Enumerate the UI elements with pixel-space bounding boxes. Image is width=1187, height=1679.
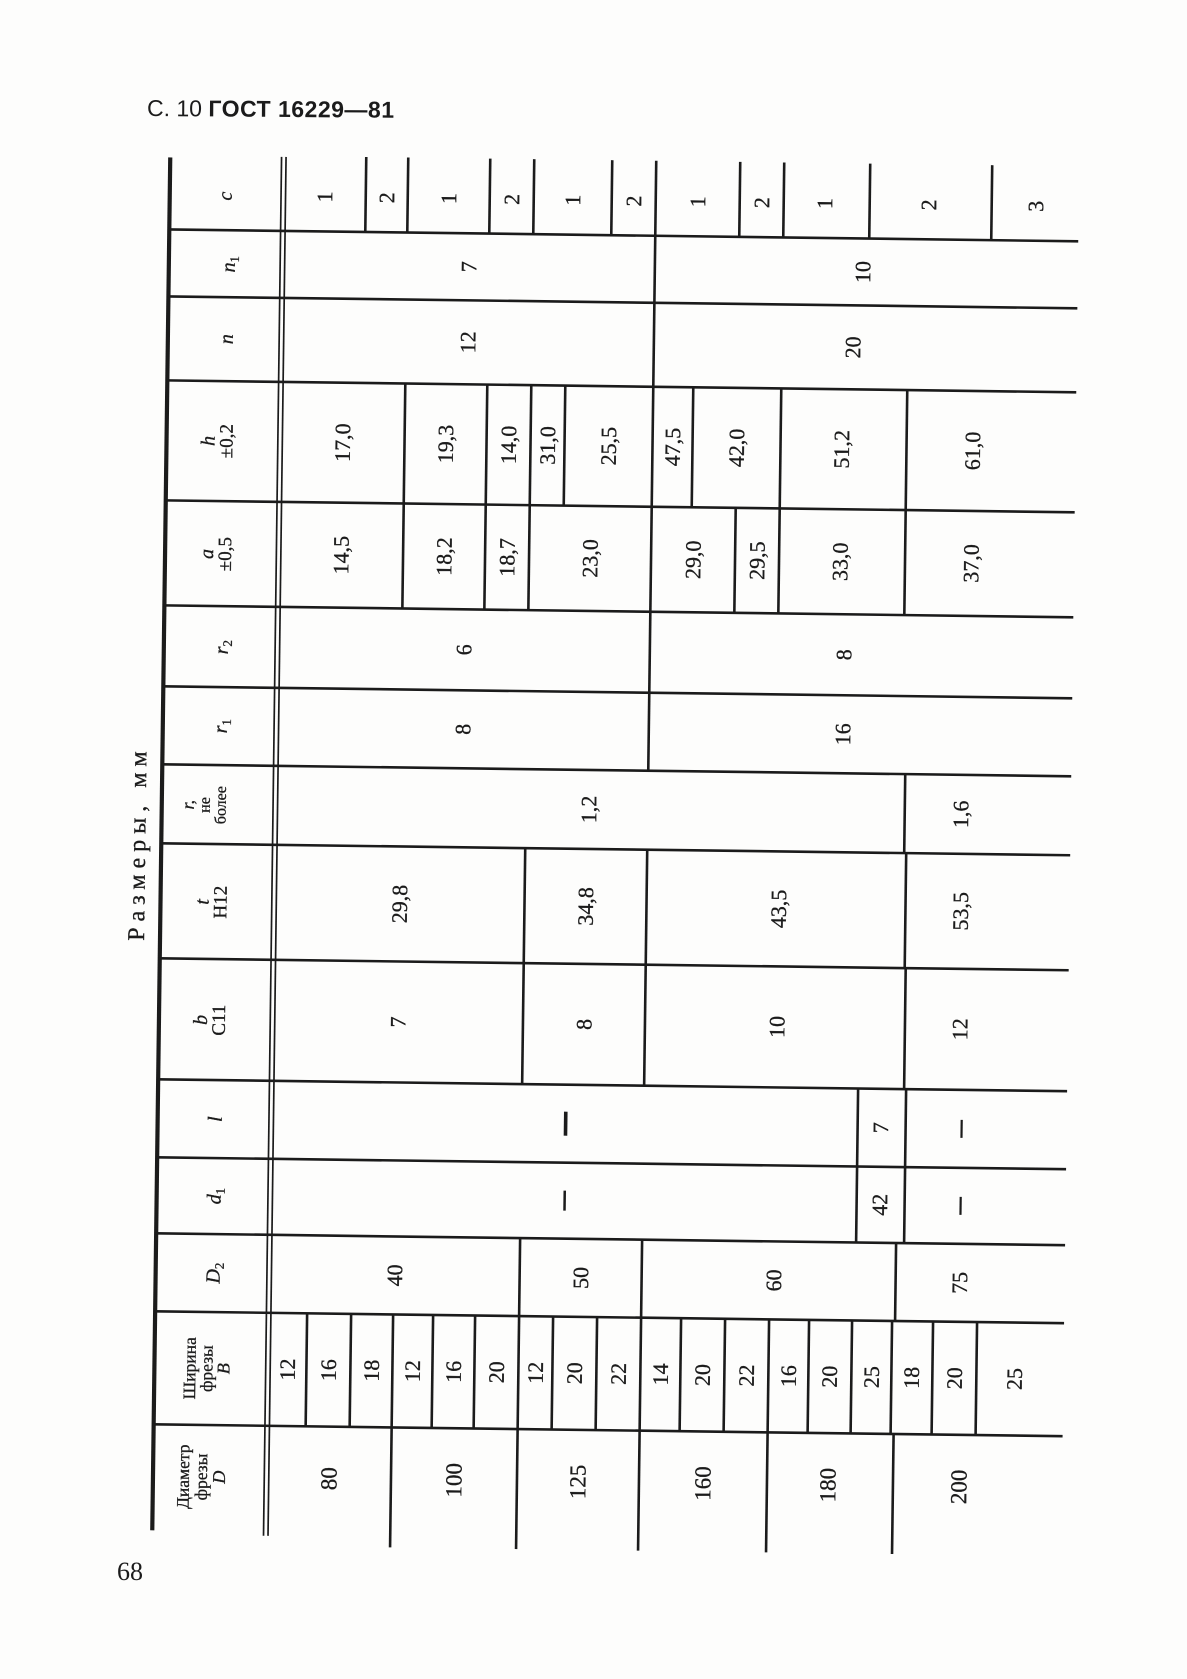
- svg-text:8: 8: [450, 724, 475, 735]
- svg-text:125: 125: [565, 1464, 590, 1499]
- svg-text:1: 1: [436, 193, 461, 204]
- svg-text:37,0: 37,0: [958, 544, 984, 583]
- svg-text:1: 1: [812, 198, 837, 209]
- svg-text:3: 3: [1023, 201, 1048, 212]
- svg-text:14,0: 14,0: [496, 425, 522, 464]
- svg-text:2: 2: [499, 194, 524, 205]
- svg-text:42: 42: [867, 1194, 892, 1216]
- svg-text:12: 12: [275, 1358, 300, 1380]
- svg-text:14: 14: [648, 1363, 673, 1385]
- svg-text:22: 22: [606, 1363, 631, 1385]
- svg-text:10: 10: [764, 1016, 789, 1038]
- svg-text:6: 6: [451, 644, 476, 655]
- svg-text:75: 75: [947, 1272, 972, 1294]
- svg-text:18: 18: [359, 1359, 384, 1381]
- svg-text:23,0: 23,0: [577, 539, 603, 578]
- svg-text:В: В: [213, 1363, 233, 1374]
- svg-text:С. 10 ГОСТ 16229—81: С. 10 ГОСТ 16229—81: [147, 95, 395, 123]
- svg-text:160: 160: [690, 1466, 715, 1501]
- svg-text:20: 20: [840, 336, 865, 358]
- svg-text:±0,5: ±0,5: [215, 537, 236, 571]
- svg-text:16: 16: [830, 723, 855, 745]
- svg-text:r,: r,: [178, 800, 198, 810]
- svg-text:1,2: 1,2: [576, 796, 601, 824]
- svg-text:n: n: [216, 334, 238, 344]
- svg-text:18: 18: [899, 1367, 924, 1389]
- svg-text:100: 100: [441, 1463, 466, 1498]
- svg-text:25: 25: [1002, 1368, 1027, 1390]
- svg-text:1: 1: [685, 196, 710, 207]
- svg-text:47,5: 47,5: [660, 428, 686, 467]
- svg-text:1: 1: [560, 195, 585, 206]
- svg-text:51,2: 51,2: [829, 430, 855, 469]
- svg-text:8: 8: [831, 649, 856, 660]
- svg-text:50: 50: [568, 1267, 593, 1289]
- svg-text:42,0: 42,0: [724, 428, 750, 467]
- svg-text:16: 16: [316, 1359, 341, 1381]
- svg-text:10: 10: [850, 261, 875, 283]
- svg-text:2: 2: [916, 199, 941, 210]
- svg-text:12: 12: [947, 1018, 972, 1040]
- svg-text:34,8: 34,8: [573, 887, 599, 926]
- svg-text:43,5: 43,5: [766, 890, 792, 929]
- svg-text:более: более: [213, 786, 230, 824]
- svg-text:c: c: [215, 191, 237, 200]
- svg-text:200: 200: [946, 1469, 971, 1504]
- svg-text:53,5: 53,5: [948, 892, 974, 931]
- svg-text:Н12: Н12: [210, 886, 231, 919]
- svg-text:22: 22: [734, 1364, 759, 1386]
- svg-text:12: 12: [400, 1360, 425, 1382]
- svg-text:7: 7: [385, 1016, 410, 1027]
- svg-text:25,5: 25,5: [596, 427, 622, 466]
- svg-text:20: 20: [562, 1362, 587, 1384]
- svg-text:7: 7: [868, 1122, 893, 1133]
- svg-text:D: D: [209, 1471, 229, 1485]
- svg-text:29,8: 29,8: [387, 885, 413, 924]
- svg-text:29,0: 29,0: [680, 540, 706, 579]
- svg-text:12: 12: [523, 1362, 548, 1384]
- svg-text:12: 12: [455, 331, 480, 353]
- svg-text:не: не: [197, 797, 214, 813]
- svg-text:20: 20: [484, 1361, 509, 1383]
- svg-text:2: 2: [621, 195, 646, 206]
- svg-text:20: 20: [690, 1364, 715, 1386]
- svg-text:17,0: 17,0: [330, 423, 356, 462]
- svg-text:33,0: 33,0: [827, 542, 853, 581]
- svg-text:20: 20: [942, 1367, 967, 1389]
- svg-text:68: 68: [117, 1557, 143, 1586]
- svg-text:16: 16: [441, 1361, 466, 1383]
- svg-text:2: 2: [749, 197, 774, 208]
- svg-text:80: 80: [316, 1467, 341, 1490]
- svg-text:14,5: 14,5: [328, 536, 354, 575]
- svg-text:31,0: 31,0: [535, 426, 561, 465]
- svg-text:7: 7: [456, 261, 481, 272]
- svg-text:2: 2: [374, 192, 399, 203]
- svg-text:40: 40: [382, 1264, 407, 1286]
- svg-text:29,5: 29,5: [744, 541, 770, 580]
- svg-text:18,7: 18,7: [494, 538, 520, 577]
- svg-text:25: 25: [859, 1366, 884, 1388]
- svg-text:180: 180: [815, 1468, 840, 1503]
- svg-text:18,2: 18,2: [431, 537, 457, 576]
- svg-text:16: 16: [776, 1365, 801, 1387]
- svg-text:l: l: [205, 1116, 227, 1122]
- svg-text:19,3: 19,3: [433, 425, 459, 464]
- svg-text:1: 1: [312, 191, 337, 202]
- svg-text:1,6: 1,6: [948, 800, 973, 828]
- svg-text:60: 60: [761, 1269, 786, 1291]
- svg-text:61,0: 61,0: [960, 432, 986, 471]
- svg-text:С11: С11: [209, 1005, 230, 1036]
- svg-text:±0,2: ±0,2: [216, 424, 237, 458]
- svg-text:20: 20: [817, 1365, 842, 1387]
- svg-text:Размеры, мм: Размеры, мм: [124, 745, 153, 941]
- svg-text:8: 8: [571, 1019, 596, 1030]
